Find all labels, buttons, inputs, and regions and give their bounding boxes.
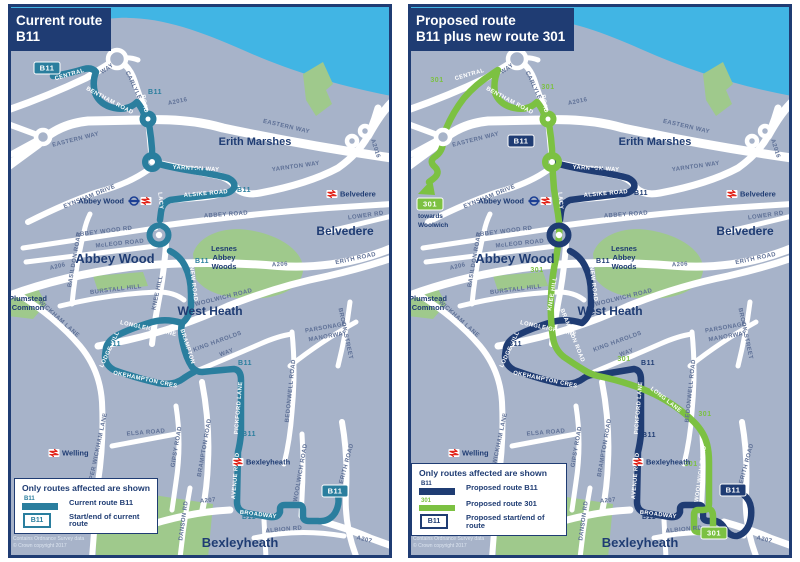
area-label: LesnesAbbeyWoods bbox=[211, 244, 237, 271]
area-label-line: Erith Marshes bbox=[619, 136, 692, 148]
area-label-line: Abbey bbox=[613, 253, 637, 262]
route-terminus-badge-text: B11 bbox=[328, 487, 343, 496]
area-label-line: Plumstead bbox=[409, 294, 447, 303]
legend-route-line-swatch bbox=[419, 488, 455, 495]
legend-item: 301Proposed route 301 bbox=[419, 498, 559, 512]
national-rail-icon bbox=[327, 190, 338, 198]
route-terminus-badge-text: 301 bbox=[707, 529, 721, 538]
road-label: A206 bbox=[672, 261, 689, 268]
area-label-line: Belvedere bbox=[716, 224, 774, 238]
roundabout bbox=[747, 136, 757, 146]
area-label-line: Lesnes bbox=[211, 244, 237, 253]
map-title-line2: B11 plus new route 301 bbox=[416, 29, 565, 45]
station-name: Welling bbox=[62, 449, 89, 458]
area-label: Bexleyheath bbox=[602, 535, 679, 550]
route-ref-label: B11 bbox=[242, 514, 256, 521]
route-terminus-badge-text: B11 bbox=[40, 64, 55, 73]
route-terminus-badge: B11 bbox=[322, 485, 348, 497]
map-canvas-current: WAYCARLYLEA2016EASTERN WAYEASTERN WAYYAR… bbox=[8, 4, 392, 558]
station-name: Bexleyheath bbox=[246, 458, 291, 467]
route-ref-label: B11 bbox=[195, 258, 209, 265]
legend-item: B11Proposed route B11 bbox=[419, 481, 559, 495]
area-label: Erith Marshes bbox=[219, 136, 292, 148]
route-note-line: towards bbox=[418, 213, 443, 220]
roundabout bbox=[760, 126, 770, 136]
roundabout bbox=[347, 136, 357, 146]
station-name: Bexleyheath bbox=[646, 458, 691, 467]
route-terminus-badge: B11 bbox=[508, 135, 534, 147]
route-ref-label: B11 bbox=[193, 168, 207, 175]
national-rail-icon bbox=[449, 449, 460, 457]
route-ref-label: B11 bbox=[242, 431, 256, 438]
area-label-line: Woods bbox=[612, 262, 637, 271]
legend-item-label: Proposed route 301 bbox=[466, 500, 537, 508]
national-rail-icon bbox=[49, 449, 60, 457]
route-ref-label: B11 bbox=[237, 187, 251, 194]
route-junction-dot bbox=[549, 159, 555, 165]
legend-key: B11 bbox=[419, 481, 459, 495]
route-ref-label: B11 bbox=[596, 258, 610, 265]
route-ref-label: B11 bbox=[634, 190, 648, 197]
legend-item: B11Current route B11 bbox=[22, 496, 150, 510]
area-label-line: Lesnes bbox=[611, 244, 637, 253]
area-label-line: Bexleyheath bbox=[602, 535, 679, 550]
route-terminus-badge: 301 bbox=[701, 527, 727, 539]
station-name: Welling bbox=[462, 449, 489, 458]
area-label: Bexleyheath bbox=[202, 535, 279, 550]
route-terminus-badge: B11 bbox=[34, 62, 60, 74]
copyright-line: Contains Ordnance Survey data bbox=[413, 536, 484, 542]
legend-route-line-swatch bbox=[22, 503, 58, 510]
area-label: LesnesAbbeyWoods bbox=[611, 244, 637, 271]
map-title-line1: Proposed route bbox=[416, 13, 565, 29]
station-name: Abbey Wood bbox=[478, 197, 524, 206]
station-welling: Welling bbox=[49, 449, 89, 458]
route-ref-label: 301 bbox=[698, 411, 711, 418]
route-junction-dot bbox=[149, 159, 155, 165]
station-belvedere: Belvedere bbox=[727, 190, 776, 199]
national-rail-icon bbox=[141, 197, 152, 205]
legend-route-number: 301 bbox=[421, 498, 459, 504]
area-label-line: Bexleyheath bbox=[202, 535, 279, 550]
station-name: Belvedere bbox=[340, 190, 376, 199]
area-label-line: Abbey Wood bbox=[475, 251, 554, 266]
national-rail-icon bbox=[633, 458, 644, 466]
station-bexleyheath: Bexleyheath bbox=[233, 458, 291, 467]
legend-heading: Only routes affected are shown bbox=[22, 483, 150, 493]
legend-route-number: B11 bbox=[24, 496, 62, 502]
legend-key: B11 bbox=[419, 514, 459, 529]
roundabout bbox=[36, 130, 50, 144]
route-terminus-badge-text: B11 bbox=[726, 486, 741, 495]
route-ref-label: B11 bbox=[107, 341, 121, 348]
route-note-line: Woolwich bbox=[418, 222, 448, 229]
area-label: Erith Marshes bbox=[619, 136, 692, 148]
map-panel-proposed: WAYCARLYLEA2016EASTERN WAYEASTERN WAYYAR… bbox=[408, 4, 792, 558]
legend-item-label: Proposed route B11 bbox=[466, 484, 538, 492]
area-label: Belvedere bbox=[716, 224, 774, 238]
legend-box-current: Only routes affected are shown B11Curren… bbox=[14, 478, 158, 534]
legend-item: B11Start/end of current route bbox=[22, 513, 150, 529]
area-label: West Heath bbox=[177, 304, 242, 318]
area-label-line: Belvedere bbox=[316, 224, 374, 238]
national-rail-icon bbox=[727, 190, 738, 198]
legend-key: B11 bbox=[22, 513, 62, 528]
area-label-line: West Heath bbox=[577, 304, 642, 318]
station-abbey-wood: Abbey Wood bbox=[478, 197, 551, 206]
area-label-line: Abbey bbox=[213, 253, 237, 262]
roundabout bbox=[436, 130, 450, 144]
legend-heading: Only routes affected are shown bbox=[419, 468, 559, 478]
copyright-line: Contains Ordnance Survey data bbox=[13, 536, 84, 542]
map-panel-current: WAYCARLYLEA2016EASTERN WAYEASTERN WAYYAR… bbox=[8, 4, 392, 558]
legend-key: B11 bbox=[22, 496, 62, 510]
station-bexleyheath: Bexleyheath bbox=[633, 458, 691, 467]
legend-items: B11Current route B11B11Start/end of curr… bbox=[22, 496, 150, 528]
legend-item-label: Proposed start/end of route bbox=[466, 514, 559, 530]
map-title-proposed: Proposed route B11 plus new route 301 bbox=[408, 8, 574, 51]
consultation-map-page: { "colors":{"bg":"#A7B3C9","water":"#41B… bbox=[0, 0, 800, 562]
route-ref-label: 301 bbox=[541, 84, 554, 91]
station-name: Abbey Wood bbox=[78, 197, 124, 206]
legend-route-line-swatch bbox=[419, 505, 455, 512]
map-title-line1: Current route bbox=[16, 13, 102, 29]
route-ref-label: B11 bbox=[642, 514, 656, 521]
area-label: PlumsteadCommon bbox=[9, 294, 47, 312]
legend-route-number: B11 bbox=[421, 481, 459, 487]
area-label-line: West Heath bbox=[177, 304, 242, 318]
route-ref-label: 301 bbox=[430, 77, 443, 84]
map-title-line2: B11 bbox=[16, 29, 102, 45]
area-label: Belvedere bbox=[316, 224, 374, 238]
area-label: PlumsteadCommon bbox=[409, 294, 447, 312]
station-abbey-wood: Abbey Wood bbox=[78, 197, 151, 206]
map-title-current: Current route B11 bbox=[8, 8, 111, 51]
route-terminus-badge-text: B11 bbox=[514, 137, 529, 146]
area-label-line: Abbey Wood bbox=[75, 251, 154, 266]
route-ref-label: 301 bbox=[530, 267, 543, 274]
route-terminus-badge: 301 bbox=[417, 198, 443, 210]
area-label-line: Common bbox=[412, 303, 445, 312]
area-label-line: Woods bbox=[212, 262, 237, 271]
route-ref-label: B11 bbox=[238, 360, 252, 367]
legend-terminus-box: B11 bbox=[420, 514, 448, 529]
station-welling: Welling bbox=[449, 449, 489, 458]
route-ref-label: B11 bbox=[508, 341, 522, 348]
station-belvedere: Belvedere bbox=[327, 190, 376, 199]
route-terminus-badge-text: 301 bbox=[423, 200, 437, 209]
route-ref-label: B11 bbox=[642, 432, 656, 439]
area-label-line: Common bbox=[12, 303, 45, 312]
area-label-line: Plumstead bbox=[9, 294, 47, 303]
legend-item-label: Current route B11 bbox=[69, 499, 133, 507]
copyright-line: © Crown copyright 2017 bbox=[413, 542, 467, 549]
station-name: Belvedere bbox=[740, 190, 776, 199]
copyright-line: © Crown copyright 2017 bbox=[13, 542, 67, 549]
area-label: West Heath bbox=[577, 304, 642, 318]
legend-box-proposed: Only routes affected are shown B11Propos… bbox=[411, 463, 567, 536]
road-label: A206 bbox=[272, 261, 289, 268]
route-junction-dot bbox=[556, 232, 562, 238]
legend-key: 301 bbox=[419, 498, 459, 512]
legend-terminus-box: B11 bbox=[23, 513, 51, 528]
route-junction-dot bbox=[546, 117, 551, 122]
legend-item-label: Start/end of current route bbox=[69, 513, 150, 529]
route-ref-label: B11 bbox=[591, 168, 605, 175]
national-rail-icon bbox=[541, 197, 552, 205]
legend-items: B11Proposed route B11301Proposed route 3… bbox=[419, 481, 559, 530]
route-ref-label: B11 bbox=[148, 89, 162, 96]
route-junction-dot bbox=[146, 117, 151, 122]
route-ref-label: 301 bbox=[617, 356, 630, 363]
area-label: Abbey Wood bbox=[475, 251, 554, 266]
route-terminus-badge: B11 bbox=[720, 484, 746, 496]
area-label: Abbey Wood bbox=[75, 251, 154, 266]
area-label-line: Erith Marshes bbox=[219, 136, 292, 148]
roundabout bbox=[360, 126, 370, 136]
national-rail-icon bbox=[233, 458, 244, 466]
route-ref-label: B11 bbox=[641, 360, 655, 367]
legend-item: B11Proposed start/end of route bbox=[419, 514, 559, 530]
route-junction-dot bbox=[156, 232, 162, 238]
